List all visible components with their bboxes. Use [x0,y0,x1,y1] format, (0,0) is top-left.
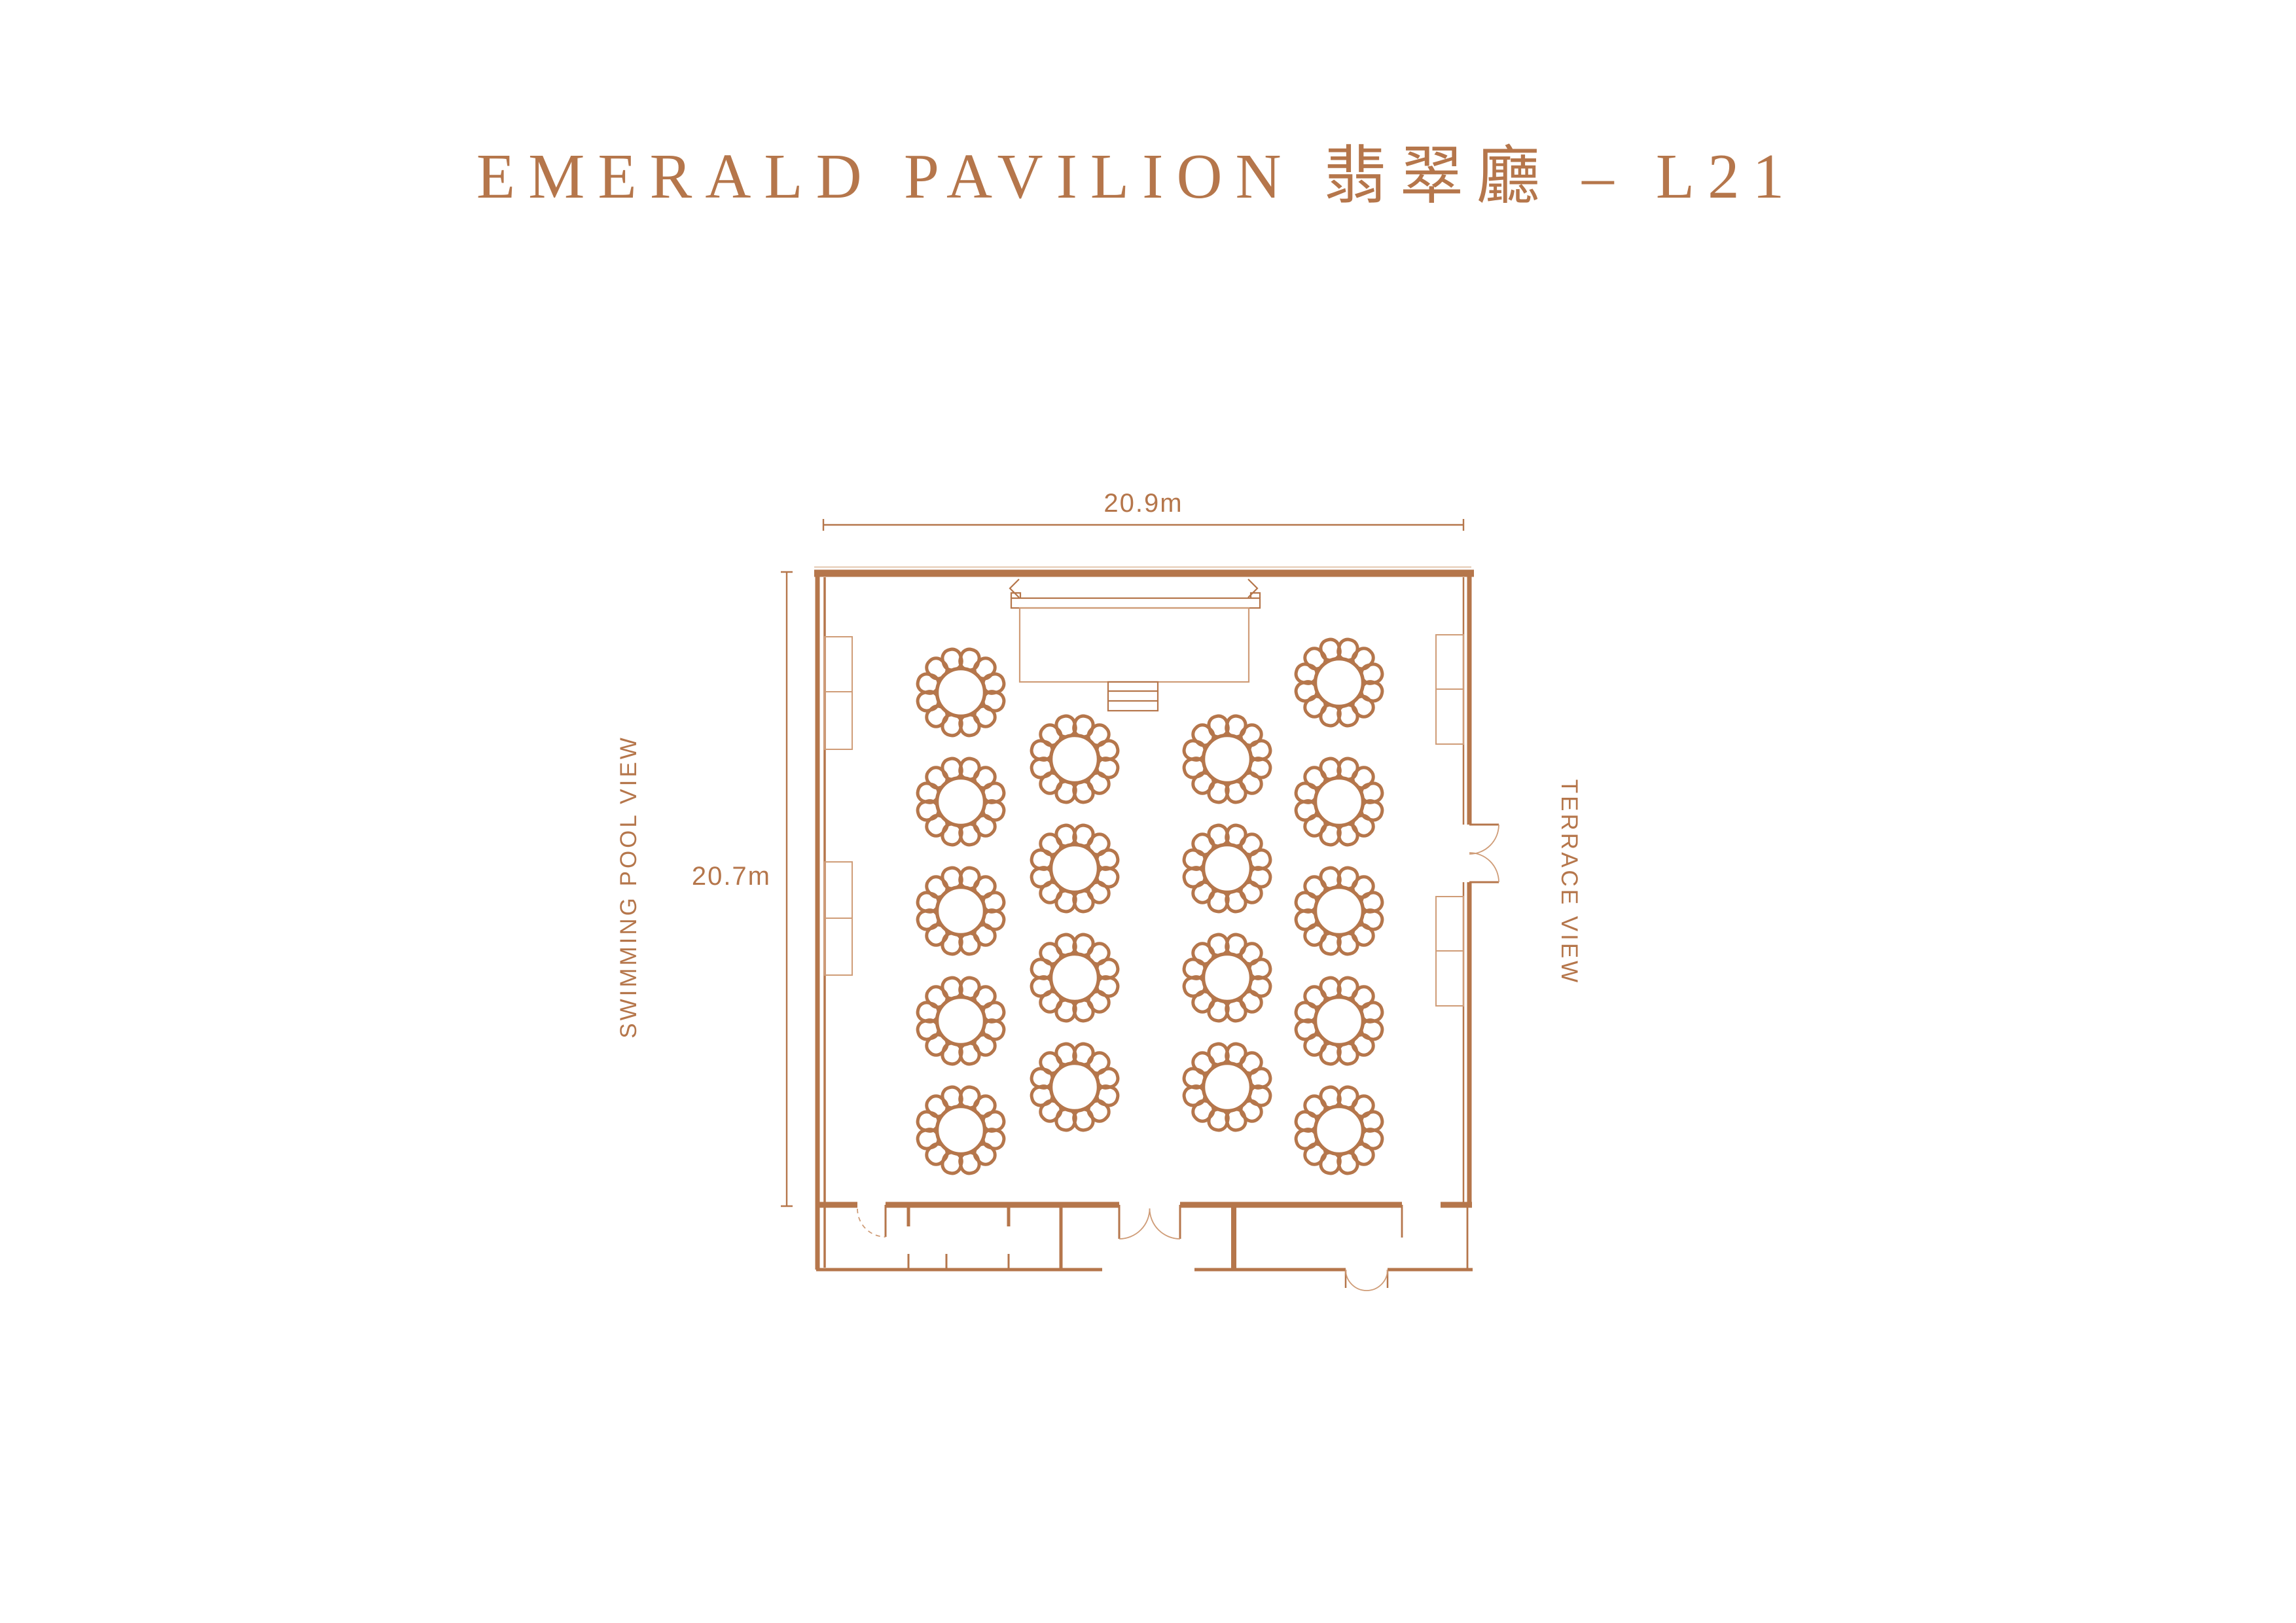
banquet-table [1182,714,1272,804]
label-swimming-pool-view: SWIMMING POOL VIEW [616,735,641,1039]
stage-platform [1020,608,1249,682]
banquet-table [1294,866,1384,956]
recess-chevron-right [1248,579,1257,597]
console-right-lower [1436,897,1463,1006]
banquet-table [1182,933,1272,1023]
stage [1010,579,1260,711]
stage-front-bar [1011,593,1260,608]
banquet-table [1182,1042,1272,1132]
dimension-depth-label: 20.7m [692,862,771,891]
banquet-table [916,866,1006,956]
banquet-table [1294,1085,1384,1175]
banquet-table [916,976,1006,1066]
dimension-width-label: 20.9m [1103,489,1183,518]
page-title: EMERALD PAVILION 翡翠廳 – L21 [476,141,1797,211]
service-partitions [908,1205,1467,1270]
rear-exit-double-door [1346,1270,1388,1291]
banquet-table [1294,637,1384,728]
banquet-table [916,647,1006,738]
dimension-width [823,519,1463,531]
banquet-tables [916,637,1384,1175]
service-door-left [857,1205,886,1237]
banquet-table [1030,714,1120,804]
banquet-table [1030,823,1120,914]
label-terrace-view: TERRACE VIEW [1556,779,1582,985]
banquet-table [1030,1042,1120,1132]
stage-steps [1108,682,1158,711]
console-left-lower [825,862,852,975]
dimension-depth [781,572,793,1206]
floor-plan-canvas: EMERALD PAVILION 翡翠廳 – L21 20.9m 20.7m S… [0,0,2296,1623]
room-walls [814,567,1474,1270]
terrace-double-door [1469,825,1499,882]
banquet-table [916,757,1006,847]
banquet-table [1294,976,1384,1066]
banquet-table [1030,933,1120,1023]
banquet-table [916,1085,1006,1175]
console-right-upper [1436,635,1463,744]
console-left-upper [825,637,852,749]
banquet-table [1294,757,1384,847]
floor-plan-page: EMERALD PAVILION 翡翠廳 – L21 20.9m 20.7m S… [0,0,2296,1623]
banquet-table [1182,823,1272,914]
main-entrance-double-door [1119,1205,1180,1239]
